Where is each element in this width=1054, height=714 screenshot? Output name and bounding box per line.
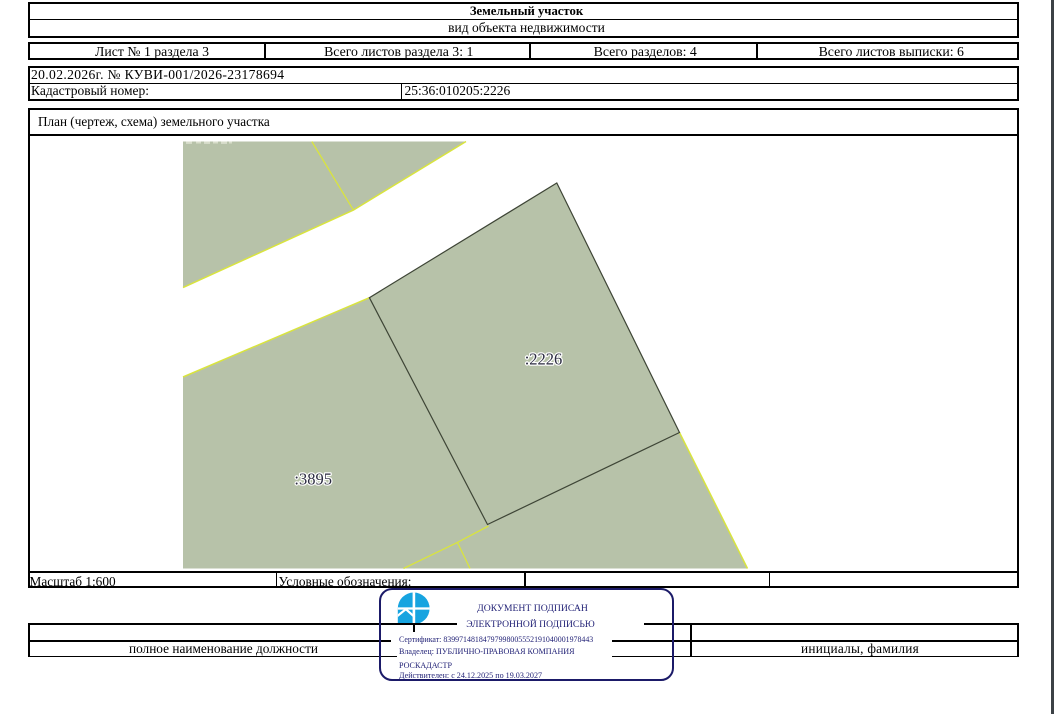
svg-text::3895: :3895 <box>294 470 332 489</box>
svg-text::2226: :2226 <box>525 350 563 369</box>
